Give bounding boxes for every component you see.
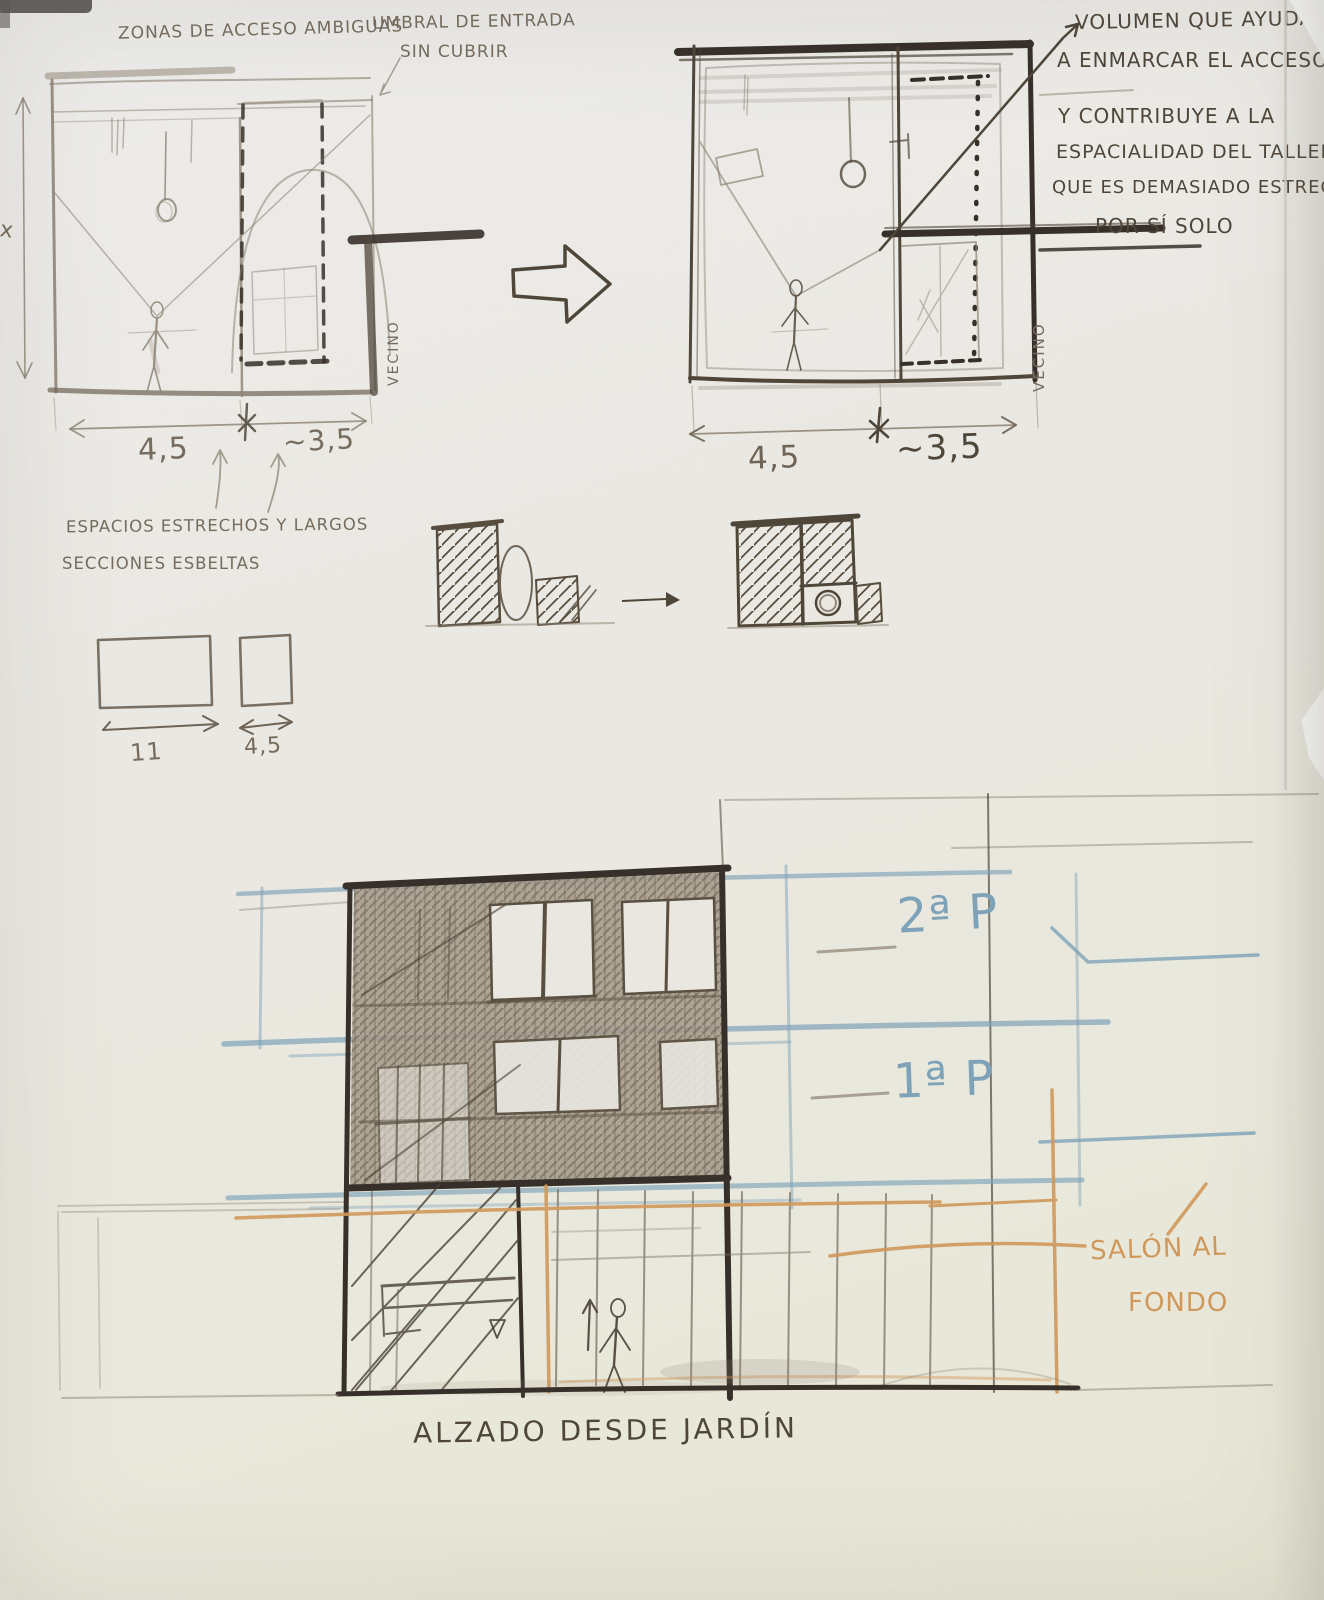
scan-edge-top-left-2 (0, 0, 10, 28)
massing-arrow (622, 592, 680, 607)
note-narrow-spaces-line1: ESPACIOS ESTRECHOS Y LARGOS (66, 515, 368, 537)
scan-edge-top-left (0, 0, 92, 13)
dim-bar-long: 11 (129, 737, 163, 767)
person-figure (143, 302, 168, 392)
massing-before (426, 521, 614, 626)
narrow-bars (98, 635, 292, 734)
salon-label-line2: FONDO (1128, 1288, 1228, 1318)
sketch-canvas (0, 0, 1324, 1600)
annotation-volume-line3: Y CONTRIBUYE A LA (1058, 104, 1275, 128)
note-narrow-spaces-line2: SECCIONES ESBELTAS (62, 554, 260, 573)
dim-right-plan-width2: ~3,5 (895, 427, 983, 470)
dim-bar-short: 4,5 (243, 733, 282, 760)
elevation-title: ALZADO DESDE JARDÍN (413, 1411, 798, 1449)
neighbor-label-right: VECINO (1030, 322, 1048, 392)
paper-edge-shade-right (1270, 0, 1324, 1600)
sketch-photo: { "colors": { "paper": "#eae8e0", "penci… (0, 0, 1324, 1600)
massing-after (728, 516, 888, 628)
note-threshold-line2: SIN CUBRIR (400, 42, 509, 62)
person-figure (490, 1299, 630, 1392)
dim-left-plan-width2: ~3,5 (282, 422, 356, 459)
floor-2-label: 2ª P (896, 883, 1000, 944)
neighbor-label-left: VECINO (386, 320, 402, 386)
dim-left-plan-width1: 4,5 (137, 431, 189, 468)
dim-right-plan-width1: 4,5 (747, 439, 801, 477)
plan-before (16, 58, 480, 512)
floor-1-label: 1ª P (892, 1050, 995, 1110)
transform-arrow (513, 246, 610, 322)
salon-label-line1: SALÓN AL (1090, 1232, 1228, 1267)
note-threshold-line1: UMBRAL DE ENTRADA (372, 10, 576, 34)
annotation-volume-line6: POR SÍ SOLO (1095, 214, 1234, 238)
